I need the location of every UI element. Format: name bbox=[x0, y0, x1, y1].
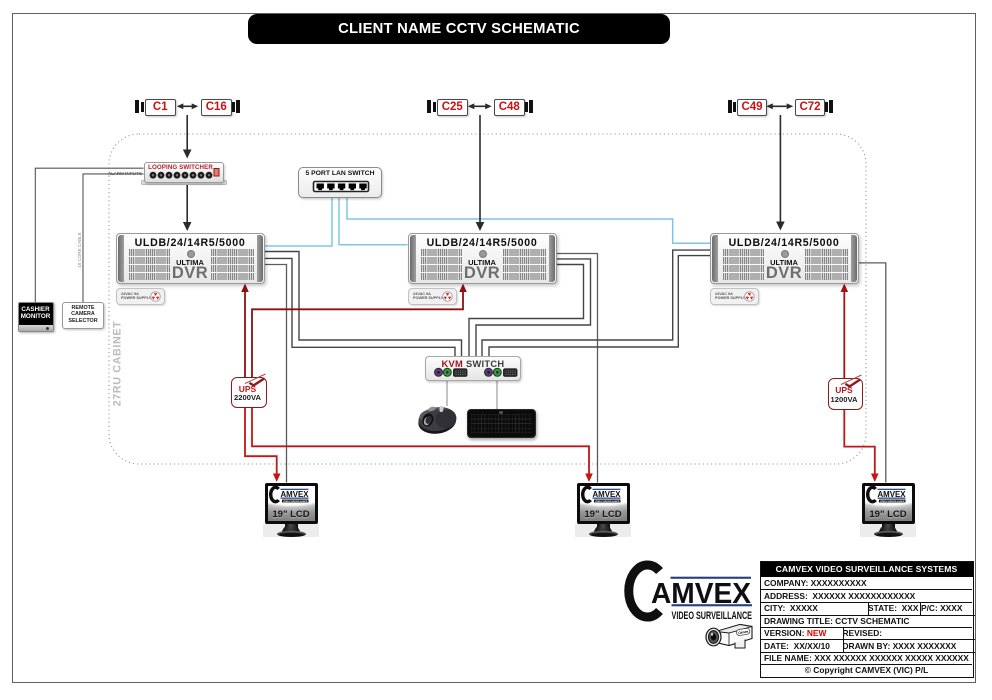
svg-text:AMVEX: AMVEX bbox=[280, 489, 309, 498]
svg-text:AMVEX: AMVEX bbox=[877, 489, 906, 498]
svg-text:VIDEO SURVEILLANCE: VIDEO SURVEILLANCE bbox=[283, 499, 308, 502]
svg-text:VIDEO SURVEILLANCE: VIDEO SURVEILLANCE bbox=[595, 499, 620, 502]
svg-text:AMVEX: AMVEX bbox=[592, 489, 621, 498]
svg-text:VIDEO SURVEILLANCE: VIDEO SURVEILLANCE bbox=[880, 499, 905, 502]
svg-text:VIDEO SURVEILLANCE: VIDEO SURVEILLANCE bbox=[672, 610, 753, 622]
svg-text:AMVEX: AMVEX bbox=[651, 578, 752, 610]
